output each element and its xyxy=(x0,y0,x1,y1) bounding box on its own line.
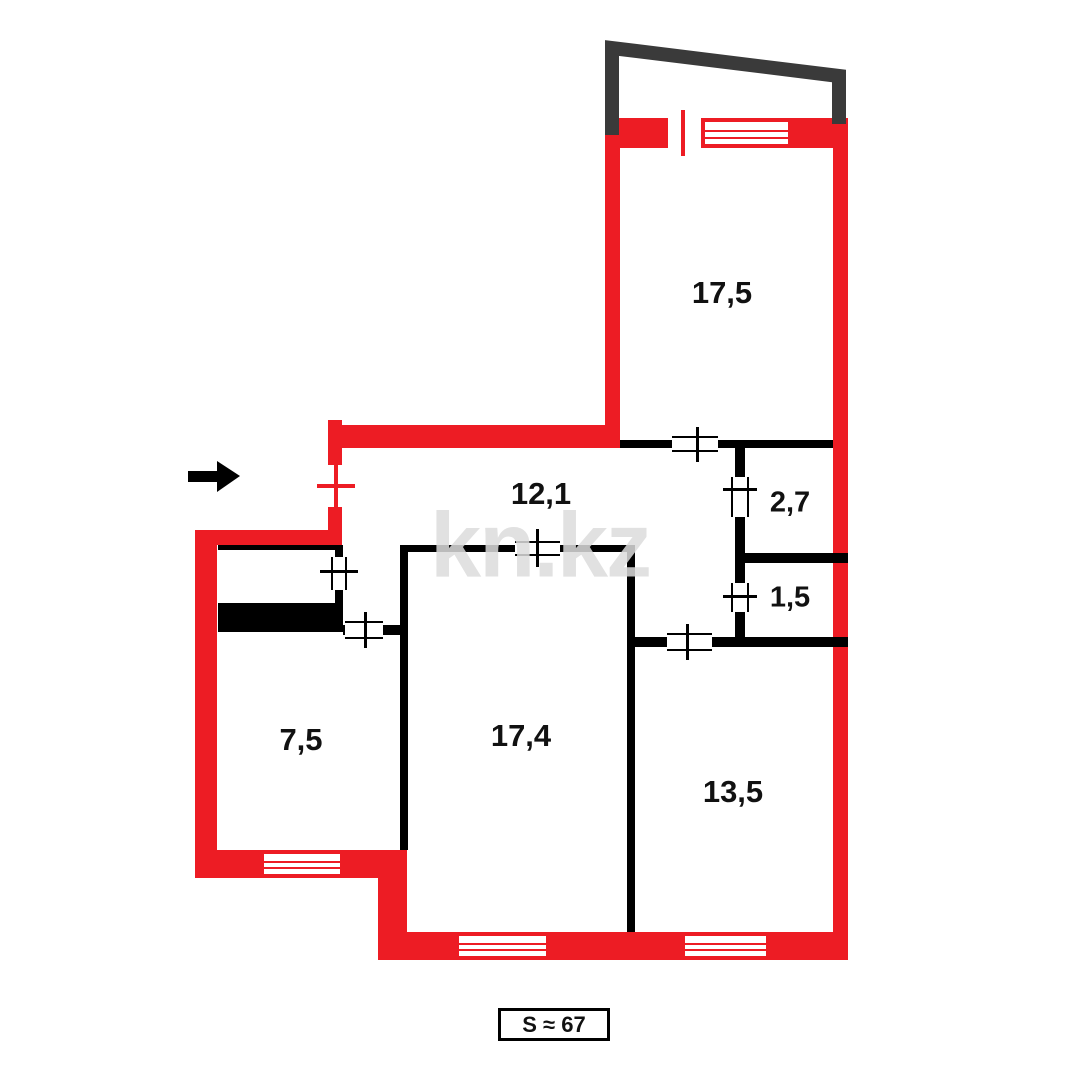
wall-left-room-17-4 xyxy=(400,545,408,850)
arrow-shaft xyxy=(188,471,218,482)
wall-bottom-room-17-5 xyxy=(620,440,833,448)
door-room-13-5-tick xyxy=(686,624,689,660)
door-room-17-5-tick xyxy=(696,427,699,462)
door-room-7-5-tick xyxy=(364,612,367,648)
wall-left-room-17-5 xyxy=(605,148,620,448)
window-room-17-4 xyxy=(457,934,548,958)
wall-nook-top-line xyxy=(218,545,343,550)
wall-bottom-exterior xyxy=(378,932,848,960)
door-closet-2-7-tick xyxy=(723,488,757,491)
window-room-13-5 xyxy=(683,934,768,958)
door-wardrobe xyxy=(331,557,347,590)
window-mullion xyxy=(685,949,766,951)
door-closet-1-5-tick xyxy=(723,595,757,598)
wall-between-closets xyxy=(735,553,848,563)
balcony-door-leaf xyxy=(681,110,685,156)
wall-between-17-4-13-5 xyxy=(627,545,635,932)
window-mullion xyxy=(459,943,546,945)
arrow-head xyxy=(217,461,240,492)
door-room-13-5 xyxy=(667,633,712,651)
door-entrance-tick xyxy=(317,484,355,488)
wall-closet-block xyxy=(218,603,343,632)
window-top-room xyxy=(703,120,790,146)
door-room-17-5 xyxy=(672,436,718,452)
room-area-label-17-5: 17,5 xyxy=(692,275,752,311)
floor-plan: 17,5 12,1 2,7 1,5 7,5 17,4 13,5 kn.kz S … xyxy=(0,0,1080,1080)
door-wardrobe-tick xyxy=(320,570,358,573)
window-mullion xyxy=(685,943,766,945)
window-mullion xyxy=(705,130,788,132)
window-mullion xyxy=(459,949,546,951)
door-closet-2-7 xyxy=(731,477,749,517)
window-mullion xyxy=(705,137,788,139)
room-area-label-17-4: 17,4 xyxy=(491,718,551,754)
wall-top-room-13-5 xyxy=(628,637,848,647)
room-area-label-1-5: 1,5 xyxy=(770,582,810,615)
room-area-label-7-5: 7,5 xyxy=(279,722,322,758)
wall-right-exterior xyxy=(833,118,848,960)
wall-left-exterior xyxy=(195,530,217,878)
window-mullion xyxy=(264,867,340,869)
window-mullion xyxy=(264,861,340,863)
watermark: kn.kz xyxy=(430,494,650,599)
wall-left-mid-horizontal xyxy=(195,530,342,545)
room-area-label-13-5: 13,5 xyxy=(703,774,763,810)
window-room-7-5 xyxy=(262,852,342,876)
wall-hallway-top xyxy=(328,425,620,448)
total-area-badge: S ≈ 67 xyxy=(498,1008,610,1041)
entrance-arrow-icon xyxy=(188,461,240,492)
room-area-label-2-7: 2,7 xyxy=(770,487,810,520)
